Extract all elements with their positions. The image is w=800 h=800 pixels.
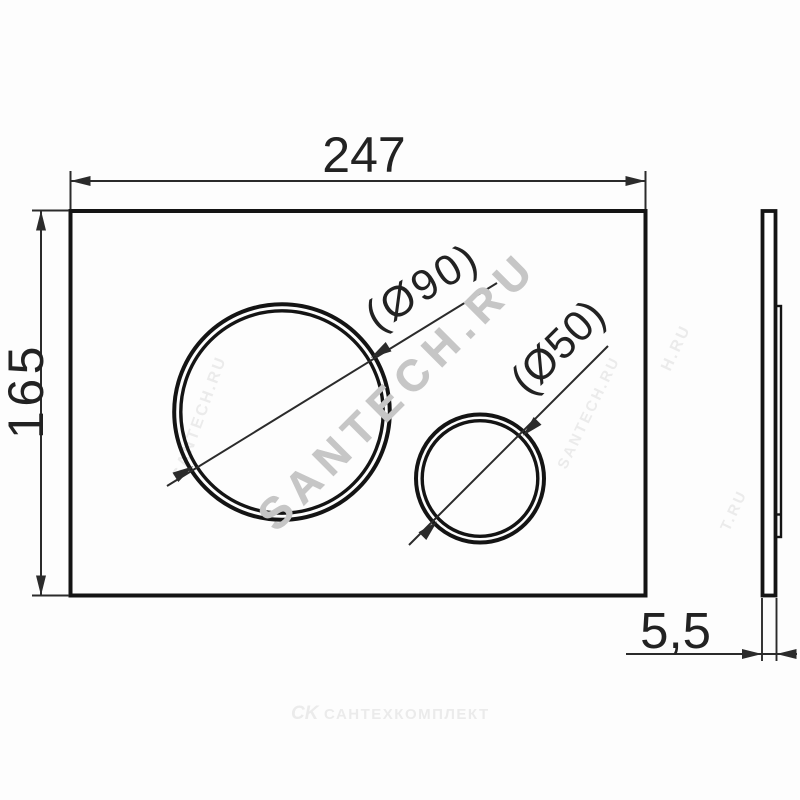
svg-text:5,5: 5,5 — [640, 602, 711, 659]
svg-text:247: 247 — [322, 127, 405, 183]
svg-text:CK: CK — [291, 703, 320, 724]
svg-text:САНТЕХКОМПЛЕКТ: САНТЕХКОМПЛЕКТ — [324, 706, 490, 723]
svg-text:165: 165 — [0, 342, 54, 439]
